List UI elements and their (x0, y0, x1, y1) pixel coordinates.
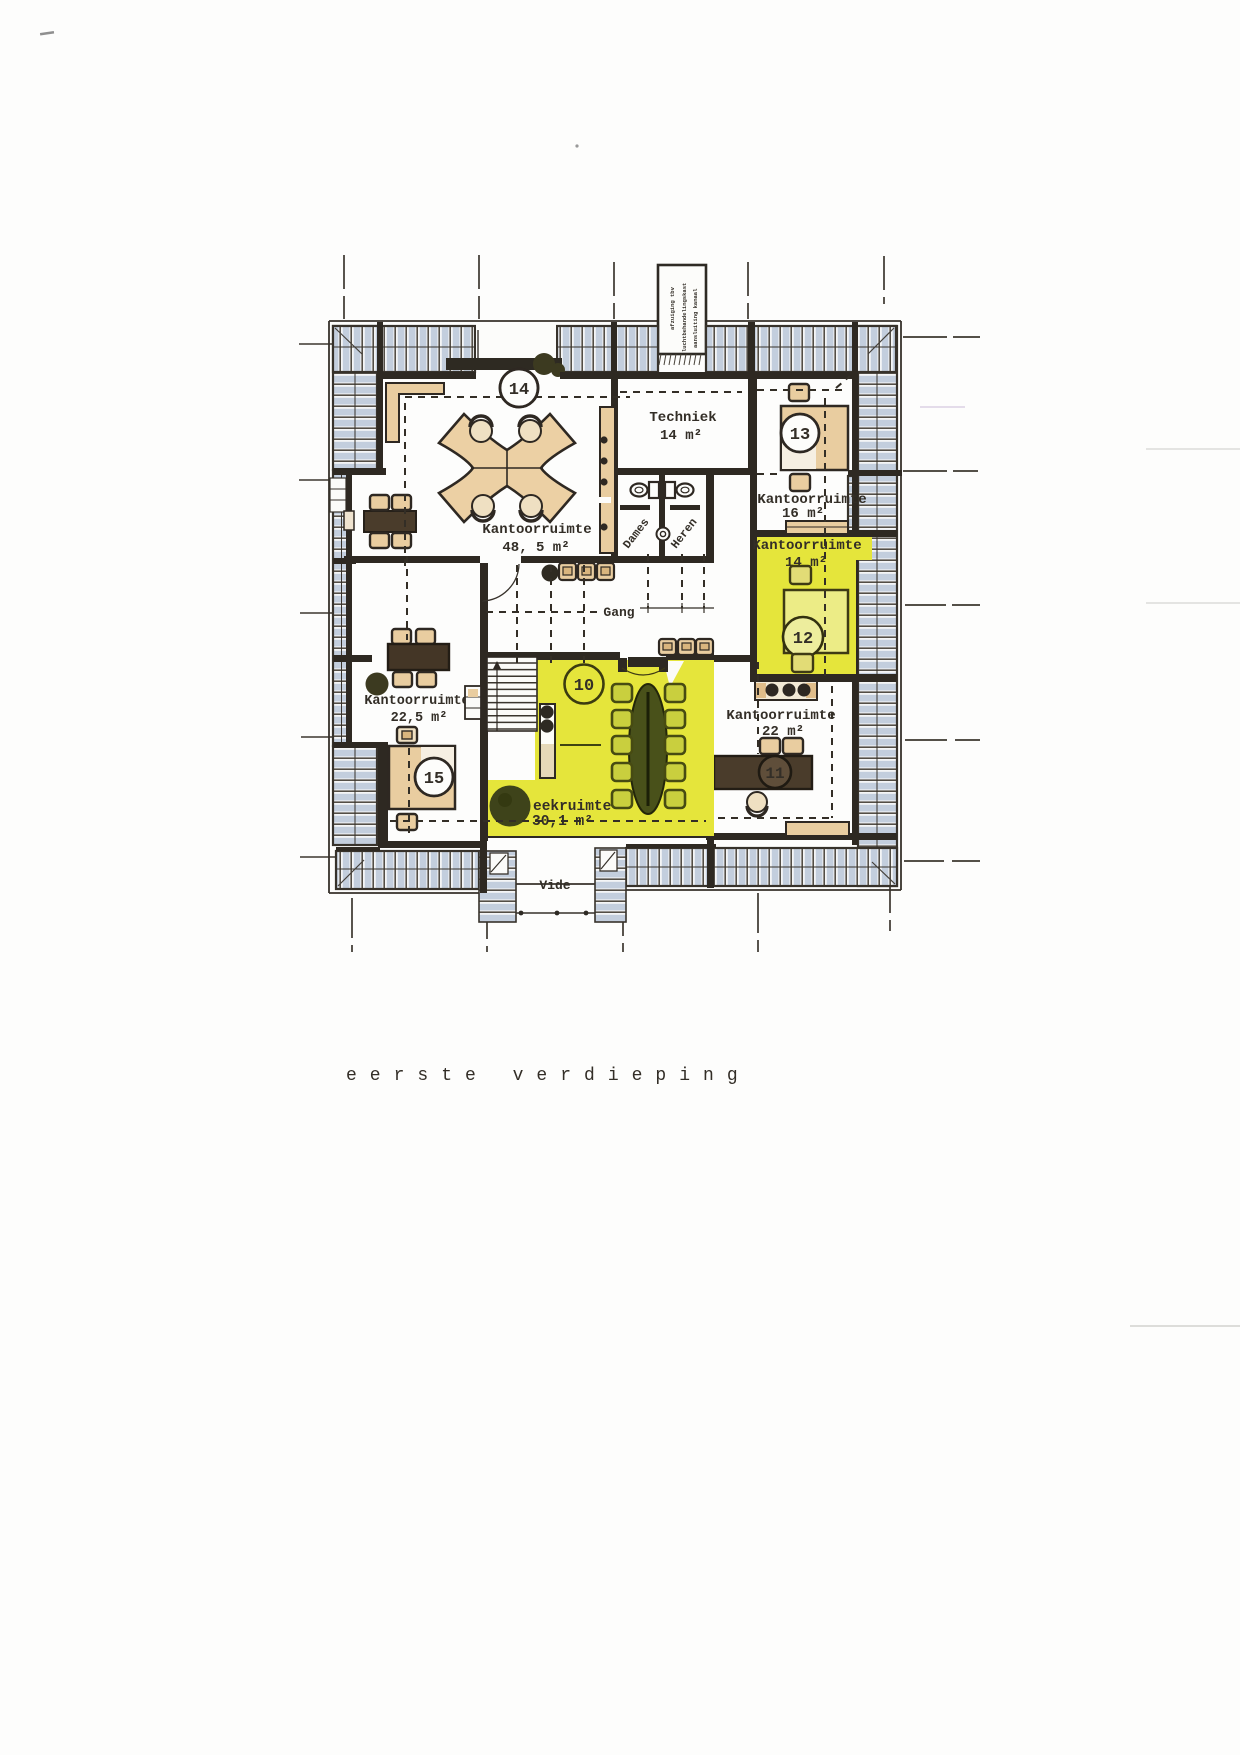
svg-text:Kantoorruimte: Kantoorruimte (726, 708, 835, 724)
svg-text:Kantoorruimte: Kantoorruimte (752, 538, 861, 554)
svg-text:48, 5 m²: 48, 5 m² (502, 540, 569, 556)
svg-text:15: 15 (424, 770, 444, 789)
svg-text:afzuiging tbv: afzuiging tbv (669, 286, 676, 330)
svg-text:11: 11 (765, 765, 784, 783)
svg-text:10: 10 (574, 677, 594, 696)
svg-text:luchtbehandelingskast: luchtbehandelingskast (681, 283, 688, 352)
svg-text:Vide: Vide (539, 878, 570, 893)
svg-text:13: 13 (790, 426, 810, 445)
svg-text:Techniek: Techniek (649, 410, 716, 426)
svg-text:Kantoorruimte: Kantoorruimte (364, 694, 469, 709)
svg-text:14 m²: 14 m² (660, 428, 702, 444)
svg-text:14: 14 (509, 381, 529, 400)
svg-text:Kantoorruimte: Kantoorruimte (482, 522, 591, 538)
svg-text:Gang: Gang (603, 605, 634, 620)
svg-text:eekruimte: eekruimte (533, 799, 611, 815)
svg-text:12: 12 (793, 630, 813, 649)
svg-text:aansluiting kanaal: aansluiting kanaal (692, 288, 699, 348)
svg-text:22,5 m²: 22,5 m² (391, 711, 448, 726)
svg-text:16 m²: 16 m² (782, 506, 824, 522)
svg-text:eerste verdieping: eerste verdieping (346, 1066, 751, 1086)
